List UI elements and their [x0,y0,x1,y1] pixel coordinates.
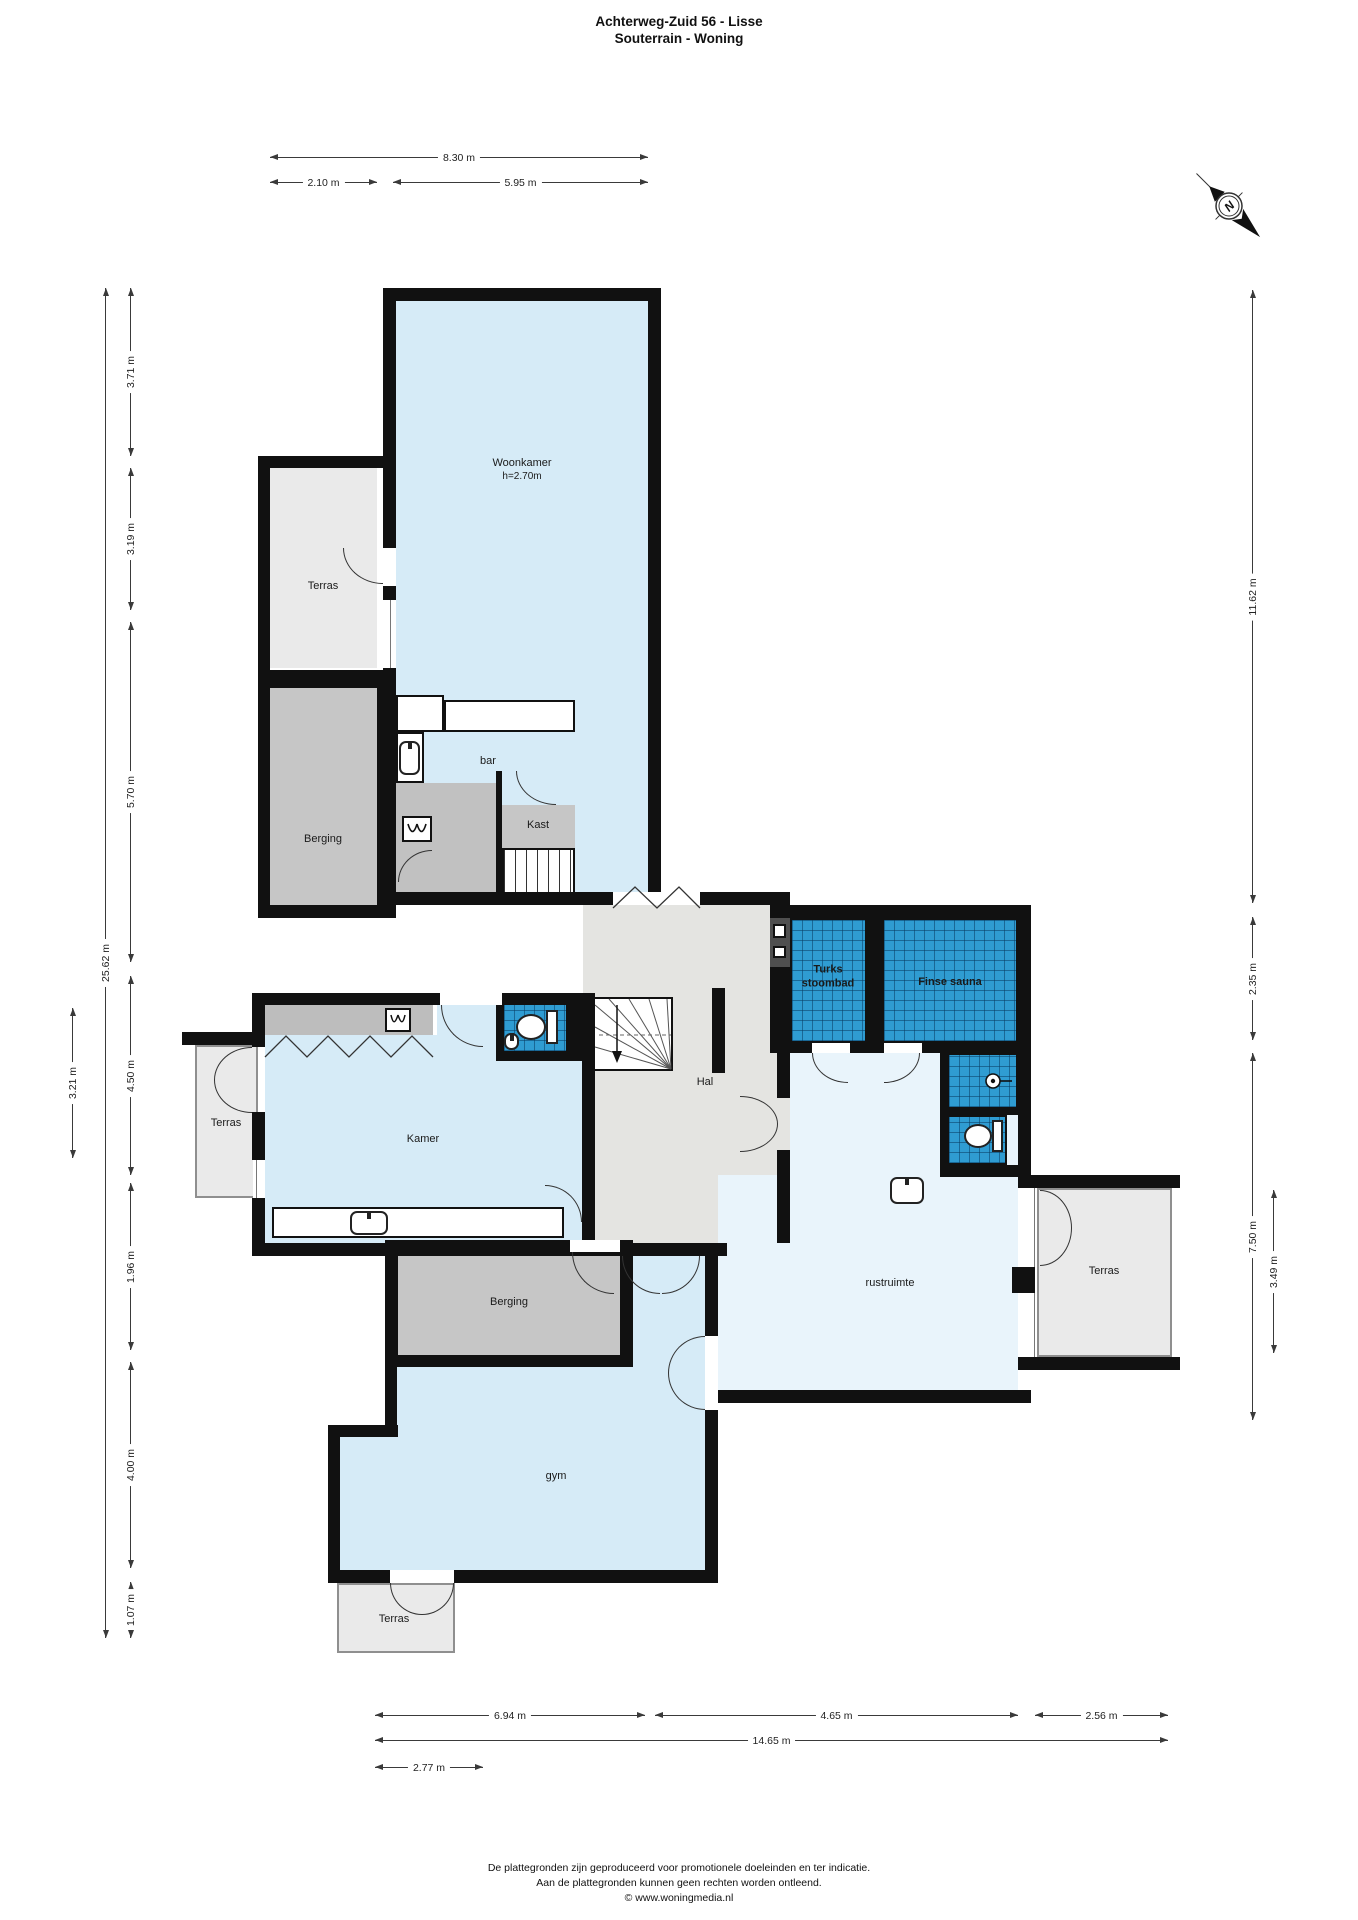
dimension: 1.07 m [130,1582,131,1638]
toilet-bowl-icon [964,1124,992,1148]
wall [705,1256,718,1583]
dimension: 2.10 m [270,182,377,183]
stairs-main [593,997,673,1071]
toilet-bowl-icon [516,1014,546,1040]
wall [258,670,396,688]
dimension: 8.30 m [270,157,648,158]
wall [1018,905,1031,1188]
compass-north-icon: N [1183,160,1275,252]
dimension: 5.70 m [130,622,131,962]
wall [383,461,396,548]
wall [940,1109,1018,1115]
dimension: 14.65 m [375,1740,1168,1741]
dimension: 25.62 m [105,288,106,1638]
wall [385,1252,398,1362]
wall [258,456,270,688]
wall [867,918,882,1043]
label-terras-left: Terras [211,1117,242,1131]
page-title: Achterweg-Zuid 56 - Lisse [0,14,1358,29]
wall [1012,1267,1035,1293]
wall [252,1112,265,1160]
label-hal: Hal [697,1076,714,1090]
label-terras-top: Terras [308,580,339,594]
tap-icon [402,816,432,842]
wall [496,771,502,905]
dimension: 6.94 m [375,1715,645,1716]
bar-sink-icon [399,741,420,775]
wall [940,1165,1020,1177]
wall [383,301,396,461]
footer-disclaimer-1: De plattegronden zijn geproduceerd voor … [0,1862,1358,1874]
door-opening [812,1043,850,1053]
wall [383,892,790,905]
wall [777,1150,790,1243]
toilet-sink-icon [504,1033,519,1050]
wall [258,456,396,468]
label-berging-top: Berging [304,833,342,847]
dimension: 2.35 m [1252,917,1253,1040]
dimension: 2.77 m [375,1767,483,1768]
wall [258,688,270,918]
folding-door [265,1033,433,1059]
wall [568,993,582,1056]
wall [252,993,595,1005]
wall [258,905,396,918]
label-kast: Kast [527,819,549,833]
wall [496,1002,502,1053]
wall [1018,1175,1180,1188]
floorplan-page: Achterweg-Zuid 56 - Lisse Souterrain - W… [0,0,1358,1920]
wall [712,988,725,1073]
wall [582,1005,595,1256]
wall [648,301,661,892]
kamer-sink-icon [350,1211,388,1235]
room-berging-top [270,688,377,905]
door-opening [390,1570,454,1583]
dimension: 4.65 m [655,1715,1018,1716]
room-gym [340,1437,718,1570]
dimension: 4.00 m [130,1362,131,1568]
dimension: 3.71 m [130,288,131,456]
wall [1018,1357,1180,1370]
dimension: 4.50 m [130,976,131,1175]
wall [770,967,790,1043]
dimension: 5.95 m [393,182,648,183]
window [1031,1188,1036,1267]
counter [444,700,575,732]
wall [328,1437,340,1583]
door-opening [570,1240,620,1252]
label-finse-sauna: Finse sauna [918,976,982,990]
dimension: 1.96 m [130,1183,131,1350]
dimension: 3.19 m [130,468,131,610]
meter-icon [773,924,786,938]
dimension: 3.21 m [72,1008,73,1158]
door-opening [440,993,502,1005]
kamer-counter [272,1207,564,1238]
window [253,1160,258,1198]
label-turks-stoombad: Turks stoombad [795,963,861,991]
wall [770,905,1030,918]
label-berging-mid: Berging [490,1296,528,1310]
label-terras-bottom: Terras [379,1613,410,1627]
shower-head-icon [980,1066,1014,1096]
counter [396,695,444,732]
label-bar: bar [480,755,496,769]
wall [328,1570,718,1583]
door-opening [705,1336,718,1410]
dimension: 11.62 m [1252,290,1253,903]
label-terras-right: Terras [1089,1265,1120,1279]
meter-icon [773,946,786,958]
footer-credit: © www.woningmedia.nl [0,1892,1358,1904]
footer-disclaimer-2: Aan de plattegronden kunnen geen rechten… [0,1877,1358,1889]
stairs-fan [595,999,675,1073]
dimension: 3.49 m [1273,1190,1274,1353]
dimension: 7.50 m [1252,1053,1253,1420]
label-kamer: Kamer [407,1133,439,1147]
fixture-icon [385,1008,411,1032]
label-woonkamer: Woonkamer h=2.70m [492,457,551,483]
toilet-icon [546,1010,558,1044]
door-opening [884,1043,922,1053]
rustruimte-sink-icon [890,1177,924,1204]
wall [383,288,661,301]
label-rustruimte: rustruimte [866,1277,915,1291]
window [1031,1293,1036,1357]
wall [328,1425,398,1437]
label-gym: gym [546,1470,567,1484]
toilet-icon [992,1120,1003,1152]
folding-door [613,884,700,910]
window [383,600,396,668]
wall [182,1032,265,1045]
dimension: 2.56 m [1035,1715,1168,1716]
wall [385,1355,633,1367]
wall [383,586,396,600]
wall [718,1390,1031,1403]
wall [377,670,396,905]
page-subtitle: Souterrain - Woning [0,31,1358,46]
